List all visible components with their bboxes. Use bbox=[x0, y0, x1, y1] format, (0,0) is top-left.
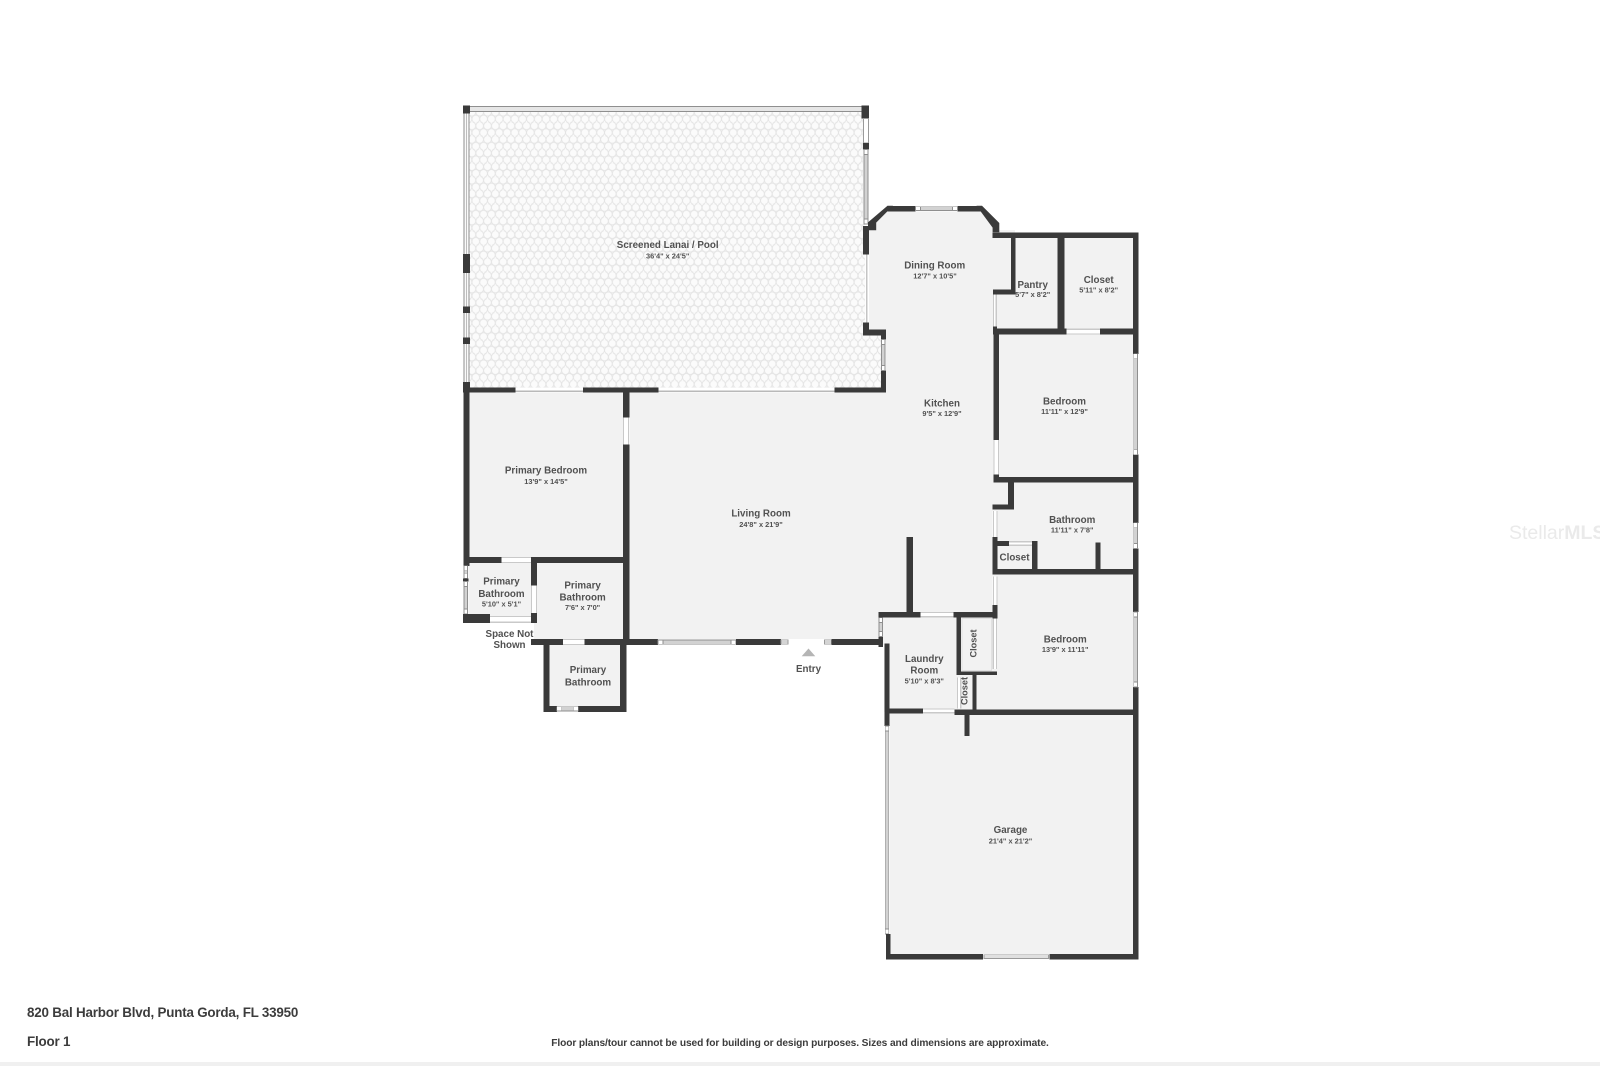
svg-text:Primary: Primary bbox=[570, 665, 607, 676]
svg-text:Primary Bedroom: Primary Bedroom bbox=[505, 466, 588, 477]
svg-text:13'9" x 14'5": 13'9" x 14'5" bbox=[524, 477, 568, 486]
svg-text:5'10" x 8'3": 5'10" x 8'3" bbox=[905, 677, 945, 686]
svg-text:36'4" x 24'5": 36'4" x 24'5" bbox=[646, 251, 690, 260]
svg-text:5'10" x 5'1": 5'10" x 5'1" bbox=[482, 600, 522, 609]
svg-text:5'11" x 8'2": 5'11" x 8'2" bbox=[1079, 286, 1118, 295]
svg-text:Room: Room bbox=[910, 665, 938, 676]
svg-text:Living Room: Living Room bbox=[731, 508, 791, 519]
svg-text:Bedroom: Bedroom bbox=[1044, 635, 1087, 646]
svg-text:Bathroom: Bathroom bbox=[478, 589, 525, 600]
svg-text:7'6" x 7'0": 7'6" x 7'0" bbox=[565, 603, 601, 612]
svg-text:Entry: Entry bbox=[796, 664, 822, 675]
svg-text:Kitchen: Kitchen bbox=[924, 399, 960, 410]
svg-text:21'4" x 21'2": 21'4" x 21'2" bbox=[989, 837, 1033, 846]
svg-text:Dining Room: Dining Room bbox=[904, 261, 965, 272]
svg-text:Screened Lanai / Pool: Screened Lanai / Pool bbox=[617, 240, 719, 251]
svg-text:Bedroom: Bedroom bbox=[1043, 397, 1086, 408]
svg-text:5'7" x 8'2": 5'7" x 8'2" bbox=[1015, 290, 1051, 299]
svg-text:Primary: Primary bbox=[564, 581, 601, 592]
svg-text:11'11" x 12'9": 11'11" x 12'9" bbox=[1041, 407, 1088, 416]
svg-text:Shown: Shown bbox=[493, 640, 525, 651]
svg-text:Closet: Closet bbox=[1084, 275, 1115, 286]
svg-text:Closet: Closet bbox=[960, 677, 970, 705]
svg-text:Pantry: Pantry bbox=[1017, 280, 1048, 291]
svg-text:11'11" x 7'8": 11'11" x 7'8" bbox=[1051, 525, 1094, 534]
svg-text:9'5" x 12'9": 9'5" x 12'9" bbox=[922, 409, 962, 418]
svg-text:Bathroom: Bathroom bbox=[559, 593, 606, 604]
svg-text:24'8" x 21'9": 24'8" x 21'9" bbox=[739, 520, 783, 529]
svg-text:Laundry: Laundry bbox=[905, 654, 944, 665]
svg-text:13'9" x 11'11": 13'9" x 11'11" bbox=[1042, 645, 1089, 654]
svg-text:StellarMLS: StellarMLS bbox=[1509, 522, 1600, 544]
svg-text:Primary: Primary bbox=[483, 577, 520, 588]
svg-text:Bathroom: Bathroom bbox=[565, 678, 612, 689]
svg-text:12'7" x 10'5": 12'7" x 10'5" bbox=[913, 272, 957, 281]
svg-text:Closet: Closet bbox=[1000, 553, 1031, 564]
svg-text:Closet: Closet bbox=[969, 629, 979, 657]
svg-text:Garage: Garage bbox=[994, 825, 1028, 836]
svg-text:Space Not: Space Not bbox=[486, 629, 535, 640]
